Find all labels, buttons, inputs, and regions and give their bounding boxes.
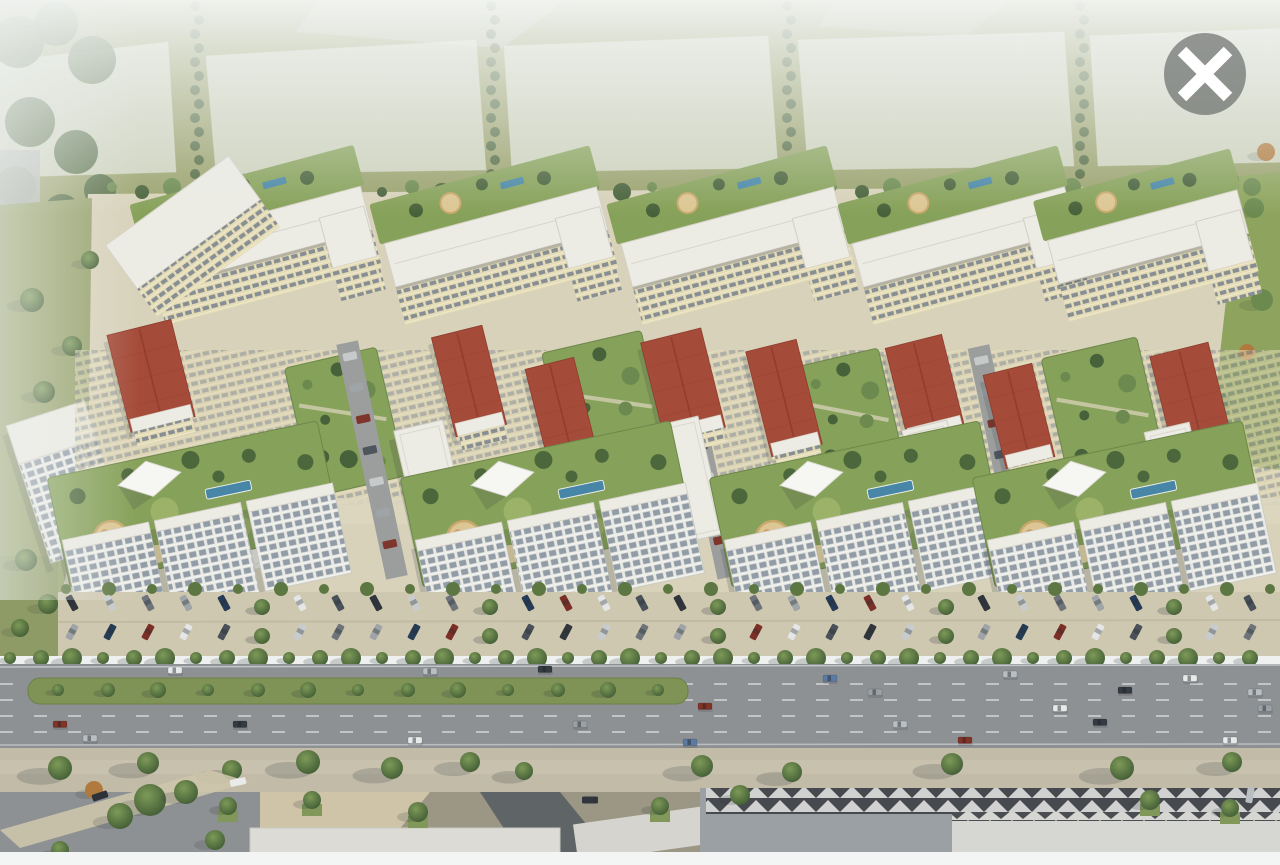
tree (749, 584, 759, 594)
tree (1166, 628, 1182, 644)
tree (194, 15, 204, 25)
tree (1027, 652, 1039, 664)
tree (482, 628, 498, 644)
tree (782, 85, 792, 95)
tree (134, 784, 166, 816)
tree (710, 599, 726, 615)
tree (1007, 584, 1017, 594)
tree (1075, 113, 1085, 123)
tree (962, 582, 976, 596)
tree (296, 750, 320, 774)
tree (1079, 127, 1089, 137)
tree (1222, 752, 1242, 772)
tree (691, 755, 713, 777)
tree (251, 683, 265, 697)
tree (233, 584, 243, 594)
tree (408, 802, 428, 822)
tree (274, 582, 288, 596)
roof-sawtooth-pattern (706, 788, 1280, 814)
tree (381, 757, 403, 779)
tree (405, 650, 421, 666)
tree (5, 97, 55, 147)
tree (1079, 99, 1089, 109)
tree (486, 85, 496, 95)
tree (1134, 582, 1148, 596)
tree (600, 682, 616, 698)
tree (934, 652, 946, 664)
tree (486, 141, 496, 151)
windshield (1098, 720, 1102, 726)
tree (532, 582, 546, 596)
tree (1149, 650, 1165, 666)
tree (38, 594, 58, 614)
tree (1079, 155, 1089, 165)
tree (190, 57, 200, 67)
car (698, 703, 713, 712)
tree (1166, 599, 1182, 615)
tree (33, 381, 55, 403)
tree (4, 652, 16, 664)
tree (190, 113, 200, 123)
tree (1140, 790, 1160, 810)
tree (490, 43, 500, 53)
tree (20, 288, 44, 312)
tree (34, 2, 78, 46)
tree (938, 628, 954, 644)
ghost-block (504, 36, 778, 172)
tree (938, 599, 954, 615)
photo-viewer: Aerial 3D rendering of a large residenti… (0, 0, 1280, 865)
tree (710, 628, 726, 644)
tree (490, 155, 500, 165)
windshield (428, 669, 432, 675)
car (1093, 719, 1108, 728)
tree (11, 619, 29, 637)
tree (1075, 85, 1085, 95)
tree (68, 36, 116, 84)
tree (1221, 799, 1239, 817)
tree (190, 141, 200, 151)
tree (782, 762, 802, 782)
tree (591, 650, 607, 666)
tree (469, 652, 481, 664)
tree (1179, 584, 1189, 594)
tree (107, 803, 133, 829)
tree (1075, 29, 1085, 39)
windshield (1058, 706, 1062, 712)
windshield (873, 690, 877, 696)
tree (1075, 1, 1085, 11)
tree (319, 584, 329, 594)
tree (1079, 15, 1089, 25)
windshield (828, 676, 832, 682)
car (233, 721, 248, 730)
tree (190, 652, 202, 664)
windshield (58, 722, 62, 728)
tree (97, 652, 109, 664)
parking-strip (58, 582, 1280, 656)
car (1223, 737, 1238, 746)
tree (312, 650, 328, 666)
car (83, 735, 98, 744)
tree (254, 628, 270, 644)
tree (704, 582, 718, 596)
tree (482, 599, 498, 615)
tree (401, 683, 415, 697)
windshield (1263, 706, 1267, 712)
tree (1213, 652, 1225, 664)
tree (652, 684, 664, 696)
tree (194, 99, 204, 109)
road-surface (0, 664, 1280, 748)
tree (1265, 584, 1275, 594)
tree (194, 127, 204, 137)
tree (188, 582, 202, 596)
tree (490, 15, 500, 25)
tree (376, 652, 388, 664)
tree (194, 155, 204, 165)
tree (1093, 584, 1103, 594)
tree (1120, 652, 1132, 664)
tree (490, 127, 500, 137)
tree (194, 71, 204, 81)
tree (841, 652, 853, 664)
parked-car (582, 797, 598, 804)
car (1053, 705, 1068, 714)
tree (1056, 650, 1072, 666)
tree (283, 652, 295, 664)
tree (101, 683, 115, 697)
tree (1110, 756, 1134, 780)
tree (486, 57, 496, 67)
tree (1048, 582, 1062, 596)
windshield (238, 722, 242, 728)
windshield (413, 738, 417, 744)
tree (1220, 582, 1234, 596)
tree (15, 549, 37, 571)
tree (786, 71, 796, 81)
close-button[interactable] (1164, 33, 1246, 115)
tree (126, 650, 142, 666)
tree (300, 682, 316, 698)
tree (613, 183, 631, 201)
car (423, 668, 438, 677)
windshield (1008, 672, 1012, 678)
tree (663, 584, 673, 594)
windshield (963, 738, 967, 744)
aerial-render-image: Aerial 3D rendering of a large residenti… (0, 0, 1280, 865)
bottom-bar (0, 852, 1280, 865)
car (53, 721, 68, 730)
tree (490, 71, 500, 81)
tree (618, 582, 632, 596)
car (1183, 675, 1198, 684)
tree (486, 1, 496, 11)
tree (786, 15, 796, 25)
tree (502, 684, 514, 696)
tree (174, 780, 198, 804)
windshield (173, 668, 177, 674)
windshield (1123, 688, 1127, 694)
tree (748, 652, 760, 664)
tree (107, 182, 117, 192)
tree (782, 113, 792, 123)
tree (190, 29, 200, 39)
car (1258, 705, 1273, 714)
tree (202, 684, 214, 696)
tree (405, 584, 415, 594)
tree (1242, 650, 1258, 666)
tree (486, 113, 496, 123)
tree (54, 130, 98, 174)
tree (460, 752, 480, 772)
tree (730, 785, 750, 805)
highway (0, 664, 1280, 748)
tree (1075, 141, 1085, 151)
windshield (1188, 676, 1192, 682)
tree (515, 762, 533, 780)
tree (1244, 198, 1264, 218)
tree (137, 752, 159, 774)
tree (303, 791, 321, 809)
tree (1075, 57, 1085, 67)
tree (835, 584, 845, 594)
tree (655, 652, 667, 664)
tree (1075, 169, 1085, 179)
tree (1079, 43, 1089, 53)
tree (876, 582, 890, 596)
tree (782, 57, 792, 67)
tree (941, 753, 963, 775)
car (538, 666, 553, 675)
road-edge-line (0, 744, 1280, 745)
tree (782, 1, 792, 11)
tree (782, 141, 792, 151)
tree (61, 584, 71, 594)
car (1118, 687, 1133, 696)
windshield (88, 736, 92, 742)
tree (870, 650, 886, 666)
tree (684, 650, 700, 666)
tree (102, 582, 116, 596)
tree (777, 650, 793, 666)
car (168, 667, 183, 676)
tree (190, 85, 200, 95)
car (683, 739, 698, 748)
windshield (543, 667, 547, 673)
tree (48, 756, 72, 780)
tree (491, 584, 501, 594)
tree (782, 29, 792, 39)
windshield (1253, 690, 1257, 696)
tree (921, 584, 931, 594)
windshield (898, 722, 902, 728)
windshield (688, 740, 692, 746)
tree (551, 683, 565, 697)
windshield (1228, 738, 1232, 744)
tree (1079, 71, 1089, 81)
car (573, 721, 588, 730)
tree (498, 650, 514, 666)
tree (190, 1, 200, 11)
tree (150, 682, 166, 698)
tree (1243, 178, 1261, 196)
tree (786, 127, 796, 137)
tree (219, 797, 237, 815)
tree (651, 797, 669, 815)
tree (1257, 143, 1275, 161)
tree (205, 830, 225, 850)
tree (147, 584, 157, 594)
tree (450, 682, 466, 698)
tree (52, 684, 64, 696)
tree (786, 99, 796, 109)
tree (81, 251, 99, 269)
tree (486, 29, 496, 39)
tree (377, 187, 387, 197)
tree (194, 43, 204, 53)
tree (562, 652, 574, 664)
tree (490, 99, 500, 109)
tree (786, 43, 796, 53)
car (1248, 689, 1263, 698)
tree (446, 582, 460, 596)
windshield (703, 704, 707, 710)
tree (219, 650, 235, 666)
car (958, 737, 973, 746)
car (1003, 671, 1018, 680)
tree (33, 650, 49, 666)
car (408, 737, 423, 746)
car (823, 675, 838, 684)
tree (360, 582, 374, 596)
ghost-block (798, 32, 1074, 170)
tree (963, 650, 979, 666)
foreground-roof (250, 828, 560, 853)
tree (647, 182, 657, 192)
tree (790, 582, 804, 596)
windshield (578, 722, 582, 728)
car (868, 689, 883, 698)
tree (254, 599, 270, 615)
tree (352, 684, 364, 696)
tree (135, 185, 149, 199)
car (893, 721, 908, 730)
tree (577, 584, 587, 594)
